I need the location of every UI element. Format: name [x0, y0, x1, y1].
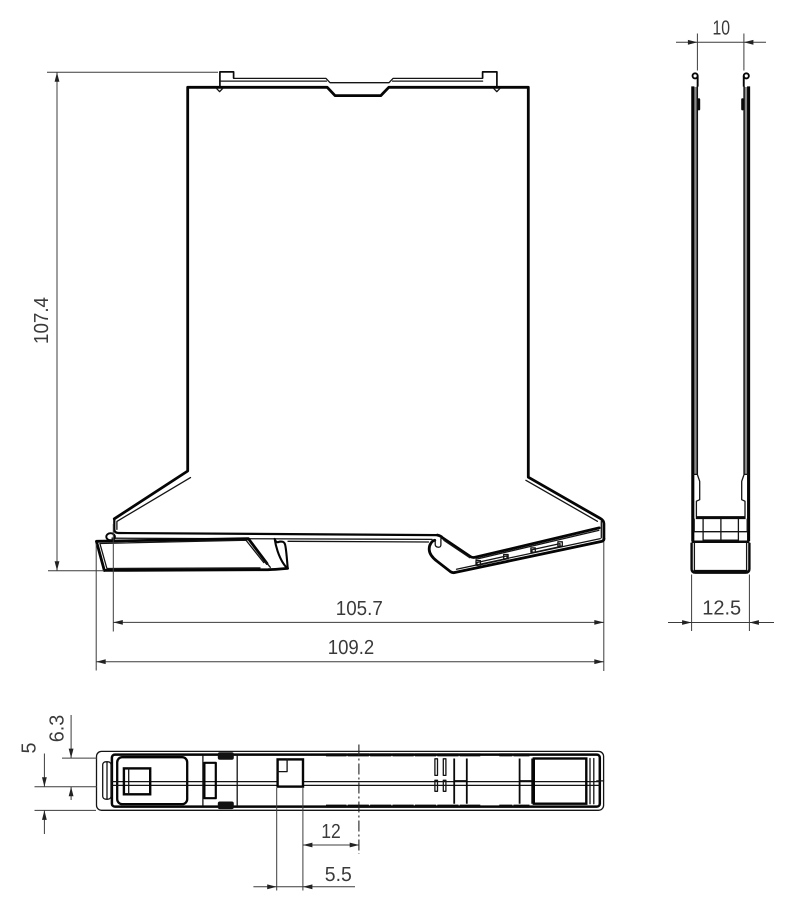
svg-text:10: 10 — [713, 17, 731, 39]
svg-text:109.2: 109.2 — [328, 637, 375, 659]
svg-text:5.5: 5.5 — [325, 864, 352, 886]
svg-text:12: 12 — [321, 821, 341, 843]
svg-text:6.3: 6.3 — [46, 715, 68, 743]
svg-text:5: 5 — [19, 743, 41, 754]
svg-text:12.5: 12.5 — [702, 598, 741, 620]
svg-text:105.7: 105.7 — [336, 598, 383, 620]
svg-text:107.4: 107.4 — [31, 297, 53, 344]
